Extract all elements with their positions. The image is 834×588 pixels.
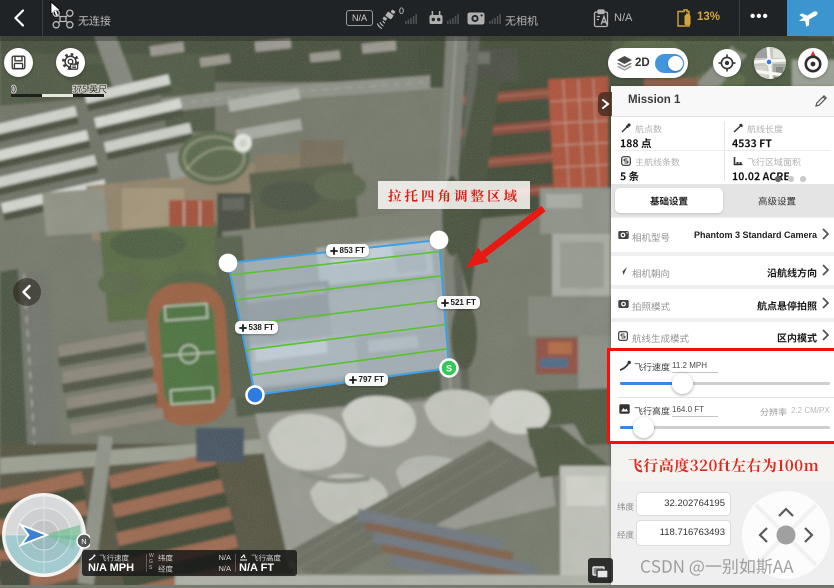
svg-text:N: N [81, 537, 86, 546]
svg-text:S: S [446, 364, 452, 374]
